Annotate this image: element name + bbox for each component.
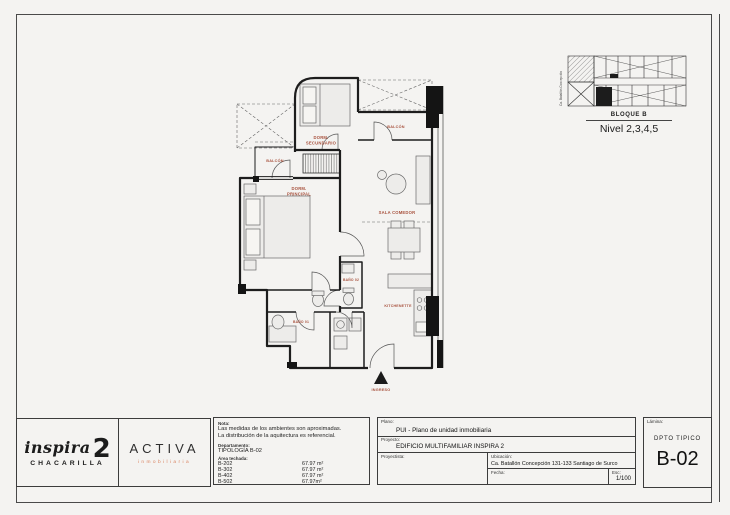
dpto-tipico-label: DPTO TIPICO (644, 436, 711, 442)
plano-value: PUI - Plano de unidad inmobiliaria (396, 427, 491, 434)
tipologia-value: TIPOLOGÍA B-02 (218, 448, 365, 454)
room-label-bano1: BAÑO 01 (293, 319, 309, 324)
logo-inspira-number: 2 (93, 438, 111, 460)
esc-label: Esc: (612, 470, 621, 475)
esc-cell: Esc: 1/100 (609, 469, 635, 484)
sheet-id-block: Lámina: DPTO TIPICO B-02 (643, 417, 712, 488)
nivel-label: Nivel 2,3,4,5 (586, 123, 672, 135)
ubicacion-label: Ubicación: (491, 454, 512, 459)
ubicacion-value: Ca. Batallón Concepción 131-133 Santiago… (491, 461, 617, 467)
key-plan: Ca. Batallón Concepción (552, 54, 692, 112)
fecha-label: Fecha: (491, 470, 505, 475)
ubicacion-cell: Ubicación: Ca. Batallón Concepción 131-1… (488, 453, 635, 469)
room-label-dorm2-line2: SECUNDARIO (306, 141, 337, 146)
logo-activa-word: ACTIVA (130, 441, 200, 456)
note-line-1: Las medidas de los ambientes son aproxim… (218, 426, 365, 433)
proyectista-cell: Proyectista: (378, 453, 488, 484)
proyecto-label: Proyecto: (381, 437, 400, 442)
key-plan-caption: BLOQUE B Nivel 2,3,4,5 (586, 112, 672, 135)
proyectista-label: Proyectista: (381, 454, 405, 459)
entry-arrow (374, 371, 388, 384)
titleblock-row-proyecto: Proyecto: EDIFICIO MULTIFAMILIAR INSPIRA… (378, 437, 635, 453)
fecha-esc-row: Fecha: Esc: 1/100 (488, 469, 635, 484)
note-line-2: La distribución de la aquitectura es ref… (218, 433, 365, 440)
logo-inspira-sub: CHACARILLA (30, 460, 105, 467)
key-plan-core (610, 74, 618, 78)
proyecto-value: EDIFICIO MULTIFAMILIAR INSPIRA 2 (396, 443, 504, 450)
notes-box: Nota: Las medidas de los ambientes son a… (213, 417, 370, 485)
room-label-kitchenette: KITCHENETTE (384, 304, 412, 308)
unit-area: 67.97m² (302, 479, 322, 485)
room-label-sala-comedor: SALA COMEDOR (379, 210, 416, 215)
key-plan-street-label: Ca. Batallón Concepción (559, 71, 563, 106)
room-label-balcon-right: BALCÓN (387, 124, 404, 129)
title-block: Plano: PUI - Plano de unidad inmobiliari… (377, 417, 636, 485)
room-label-dorm2-line1: DORM. (314, 135, 329, 140)
fecha-cell: Fecha: (488, 469, 609, 484)
titleblock-right-cells: Ubicación: Ca. Batallón Concepción 131-1… (488, 453, 635, 484)
esc-value: 1/100 (616, 476, 631, 482)
closet-hatch (303, 154, 340, 173)
unit-code: B-502 (218, 479, 302, 485)
logo-inspira-row: inspira 2 (24, 438, 110, 460)
room-label-dorm1-line1: DORM. (292, 186, 307, 191)
lamina-label: Lámina: (647, 419, 663, 424)
logo-inspira: inspira 2 CHACARILLA (16, 418, 119, 487)
room-label-balcon-left: BALCÓN (266, 158, 283, 163)
logo-inspira-word: inspira (24, 438, 90, 457)
logo-activa-sub: inmobiliaria (138, 460, 191, 465)
titleblock-row-bottom: Proyectista: Ubicación: Ca. Batallón Con… (378, 453, 635, 484)
key-plan-building (568, 56, 686, 106)
logo-activa: ACTIVA inmobiliaria (118, 418, 211, 487)
key-plan-highlighted-unit (596, 87, 612, 106)
sheet-code: B-02 (644, 448, 711, 471)
drawing-sheet: { "keyplan": { "bloque": "BLOQUE B", "ni… (0, 0, 730, 515)
titleblock-row-plano: Plano: PUI - Plano de unidad inmobiliari… (378, 418, 635, 437)
room-label-dorm1-line2: PRINCIPAL (287, 192, 311, 197)
sheet-border-outer-line (719, 14, 720, 502)
bloque-label: BLOQUE B (586, 112, 672, 121)
label-ingreso: INGRESO (372, 388, 391, 392)
unit-row: B-502 67.97m² (218, 479, 365, 485)
room-label-bano2: BAÑO 02 (343, 277, 359, 282)
plano-label: Plano: (381, 419, 394, 424)
furniture (244, 84, 432, 349)
floor-plan: BALCÓN DORM. SECUNDARIO BALCÓN DORM. PRI… (232, 55, 454, 400)
